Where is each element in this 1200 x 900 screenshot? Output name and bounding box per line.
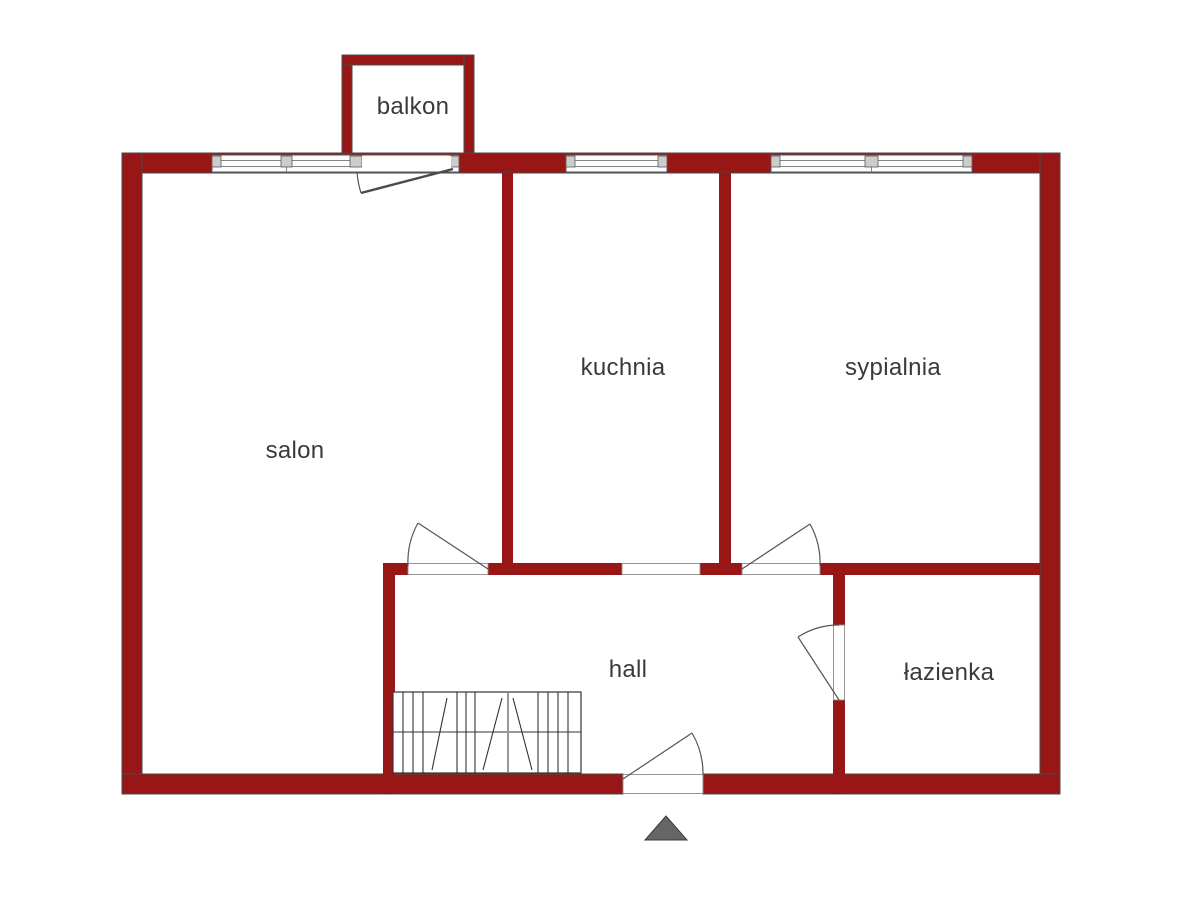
- salon-door-arc: [408, 523, 418, 566]
- wall-left: [122, 153, 142, 794]
- room-label-sypialnia: sypialnia: [845, 354, 941, 382]
- balcony-wall-left: [342, 55, 352, 155]
- wall-right: [1040, 153, 1060, 794]
- window-mullion: [658, 156, 667, 167]
- stairs: [393, 692, 581, 773]
- bathroom-door-leaf: [798, 637, 839, 700]
- room-label-lazienka: łazienka: [904, 659, 994, 687]
- balcony-door-arc: [357, 172, 361, 193]
- wall-kitchen-right: [719, 173, 731, 575]
- bathroom-door-opening: [834, 625, 845, 700]
- floor-plan: balkon salon kuchnia sypialnia hall łazi…: [0, 0, 1200, 900]
- salon-door-leaf: [418, 523, 488, 569]
- window-mullion: [865, 156, 878, 167]
- window-kitchen: [566, 155, 667, 172]
- window-mullion: [212, 156, 221, 167]
- balcony-wall-right: [464, 55, 474, 155]
- entrance-door-leaf: [623, 733, 692, 779]
- outer-walls: [122, 153, 1060, 794]
- window-mullion: [281, 156, 292, 167]
- wall-hall-top-seg4: [820, 563, 1040, 575]
- window-mullion: [771, 156, 780, 167]
- entrance-door: [623, 733, 703, 779]
- wall-hall-top-seg3: [700, 563, 742, 575]
- kitchen-opening: [622, 564, 700, 575]
- bedroom-door: [742, 524, 820, 569]
- entrance-opening: [623, 775, 703, 794]
- salon-door-opening: [408, 564, 488, 575]
- wall-kitchen-left: [502, 173, 513, 575]
- bathroom-door: [798, 625, 839, 700]
- balcony-wall-top: [342, 55, 474, 65]
- room-label-salon: salon: [266, 437, 325, 465]
- window-mullion: [350, 156, 362, 167]
- entrance-door-arc: [692, 733, 703, 774]
- room-label-hall: hall: [609, 656, 648, 684]
- balcony-door: [357, 156, 453, 193]
- balcony-door-opening: [362, 156, 451, 171]
- floor-plan-drawing: [0, 0, 1200, 900]
- wall-bottom-right: [703, 774, 1060, 794]
- wall-hall-top-seg2: [488, 563, 622, 575]
- window-mullion: [450, 156, 459, 167]
- window-bedroom: [771, 155, 972, 172]
- wall-bathroom-lower: [833, 700, 845, 794]
- bedroom-door-arc: [810, 524, 820, 566]
- windows: [212, 155, 972, 172]
- bathroom-door-arc: [798, 625, 839, 637]
- entrance-arrow-icon: [645, 816, 687, 840]
- room-label-kuchnia: kuchnia: [581, 354, 666, 382]
- bedroom-door-opening: [742, 564, 820, 575]
- window-mullion: [963, 156, 972, 167]
- room-label-balkon: balkon: [377, 93, 450, 121]
- salon-door: [408, 523, 488, 569]
- window-mullion: [566, 156, 575, 167]
- wall-bathroom-upper: [833, 575, 845, 625]
- window-kitchen-frame: [566, 155, 667, 172]
- wall-bottom-left: [122, 774, 623, 794]
- bedroom-door-leaf: [742, 524, 810, 569]
